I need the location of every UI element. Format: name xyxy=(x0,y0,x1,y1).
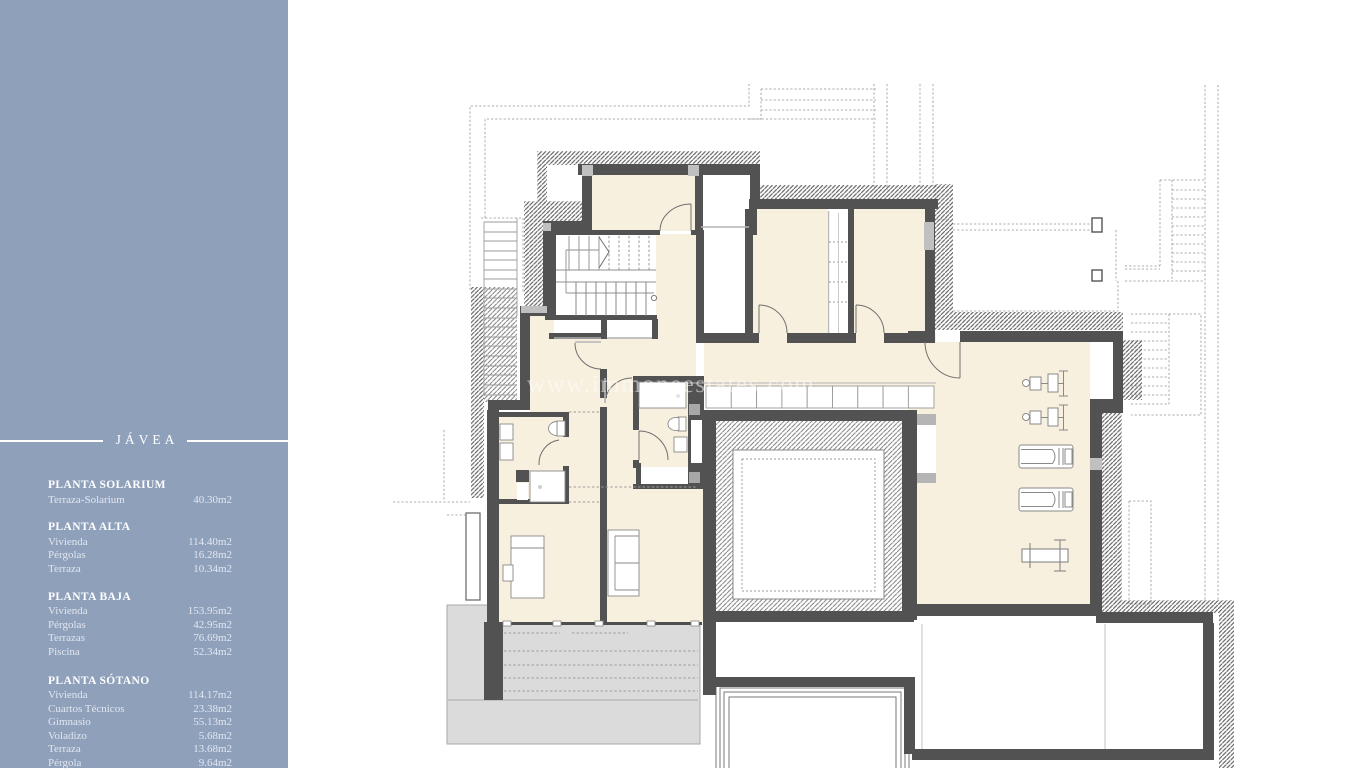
svg-text:www.immoneestates.com: www.immoneestates.com xyxy=(527,371,815,398)
